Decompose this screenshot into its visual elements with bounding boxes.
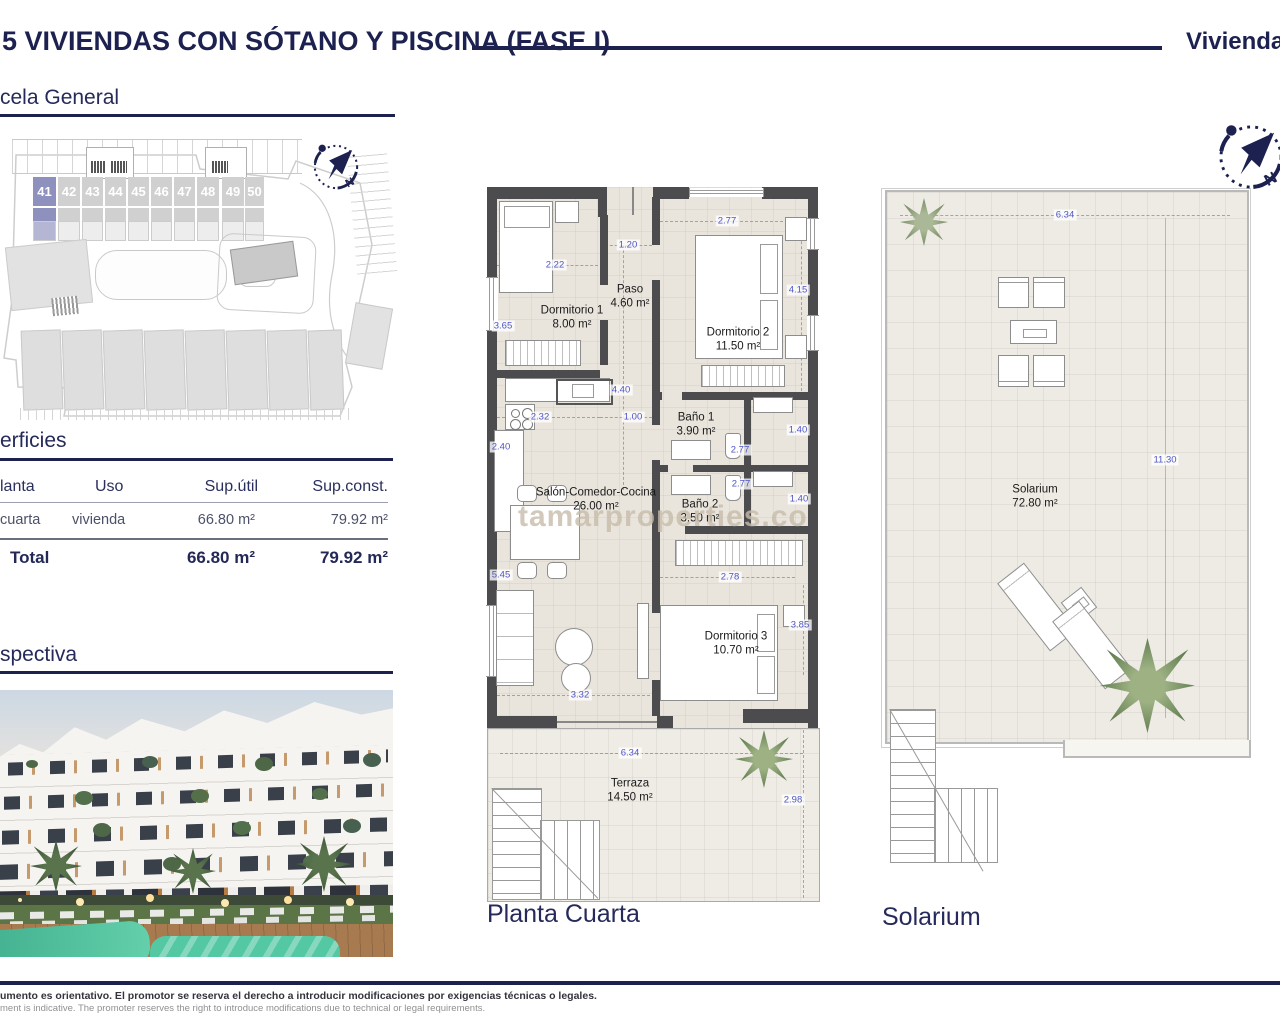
room-area: 11.50 m² <box>716 341 761 353</box>
room-name: Dormitorio 2 <box>707 327 770 339</box>
utility-unit <box>753 397 793 413</box>
room-label-solarium: Solarium 72.80 m² <box>1012 483 1057 512</box>
lower-block <box>226 329 269 410</box>
wall <box>743 709 818 723</box>
superficies-heading: erficies <box>0 429 67 453</box>
tv-bench <box>637 603 649 679</box>
bath1-sink <box>671 440 711 460</box>
dim-label: 4.15 <box>787 285 810 296</box>
round-side-table <box>561 663 591 693</box>
dim-label: 2.77 <box>729 445 752 456</box>
room-area: 8.00 m² <box>552 319 591 331</box>
dim-line <box>803 730 804 898</box>
dim-label: 3.65 <box>492 321 515 332</box>
building-render-photo <box>0 690 393 957</box>
stove-burners-icon <box>511 409 520 418</box>
parcela-general-heading: cela General <box>0 86 119 110</box>
title-rule <box>472 46 1162 50</box>
perspectiva-rule <box>0 671 393 674</box>
compass-icon: N <box>1214 120 1280 194</box>
superficies-rule <box>0 458 393 461</box>
dorm2-dresser <box>701 365 785 387</box>
terrace-slider-door <box>557 721 657 723</box>
plot-44: 44 <box>105 177 126 221</box>
total-sup-util: 66.80 m² <box>160 548 255 568</box>
lower-block <box>62 329 105 410</box>
col-header-sup-const: Sup.const. <box>285 478 388 496</box>
room-name: Terraza <box>611 778 649 790</box>
row-uso: vivienda <box>72 512 125 528</box>
solarium-floor <box>885 190 1249 744</box>
dim-label: 2.98 <box>782 795 805 806</box>
disclaimer-es: umento es orientativo. El promotor se re… <box>0 990 597 1002</box>
header-right-label: Viviendas <box>1186 28 1280 56</box>
dorm1-wardrobe <box>505 340 581 366</box>
exterior-stairs <box>890 709 936 863</box>
dim-line <box>1165 218 1166 718</box>
dim-label: 2.77 <box>716 216 739 227</box>
garden-lamps <box>18 898 22 902</box>
dim-label: 11.30 <box>1151 455 1178 466</box>
dim-label: 1.00 <box>622 412 645 423</box>
exterior-stairs <box>934 788 998 863</box>
plot-stub <box>33 221 56 241</box>
dorm3-wardrobe <box>675 540 803 566</box>
entrance-gate-left <box>86 147 134 179</box>
room-label-terraza: Terraza 14.50 m² <box>607 777 652 806</box>
room-label-paso: Paso 4.60 m² <box>611 283 650 312</box>
plot-42: 42 <box>58 177 80 221</box>
wall <box>652 465 668 472</box>
wall <box>652 197 660 245</box>
bottom-hatch <box>20 408 350 420</box>
room-label-dorm1: Dormitorio 1 8.00 m² <box>541 304 604 333</box>
dim-label: 5.45 <box>490 570 513 581</box>
plot-47: 47 <box>174 177 195 221</box>
total-label: Total <box>10 548 49 568</box>
dim-label: 2.40 <box>490 442 513 453</box>
building-block-left <box>5 239 93 311</box>
wall <box>600 215 608 285</box>
dim-label: 3.85 <box>789 620 812 631</box>
parcela-rule <box>0 114 395 117</box>
bed-pillow <box>504 206 550 228</box>
lower-block <box>21 329 64 410</box>
plot-stub <box>58 221 80 241</box>
solarium-step <box>1063 740 1251 758</box>
stair-hatch-icon <box>51 296 79 317</box>
table-header-rule <box>0 502 388 503</box>
room-label-dorm2: Dormitorio 2 11.50 m² <box>707 326 770 355</box>
dorm2-nightstand <box>785 335 807 359</box>
dorm1-bed <box>499 201 553 293</box>
brochure-page: 5 VIVIENDAS CON SÓTANO Y PISCINA (FASE I… <box>0 0 1280 1024</box>
wall <box>808 187 818 728</box>
plot-stub <box>128 221 149 241</box>
site-plan: 41 42 43 44 45 46 47 48 49 50 <box>0 125 400 420</box>
carport-row <box>12 139 302 174</box>
col-header-sup-util: Sup.útil <box>160 478 258 496</box>
table-detail <box>1023 329 1047 338</box>
table-total-rule <box>0 538 388 540</box>
plot-46: 46 <box>151 177 172 221</box>
plot-divider <box>33 206 264 208</box>
room-area: 3.90 m² <box>677 426 716 438</box>
dim-label: 4.40 <box>610 385 633 396</box>
wall <box>487 370 600 378</box>
bath2-sink <box>671 475 711 495</box>
balcony-plants <box>26 760 38 768</box>
solarium-seat <box>1033 277 1065 308</box>
col-header-uso: Uso <box>95 478 123 496</box>
room-name: Paso <box>617 284 643 296</box>
solarium-plan: 6.34 11.30 Solarium 72.80 m² <box>878 188 1252 904</box>
room-area: 72.80 m² <box>1012 498 1057 510</box>
stair-hatch-icon <box>212 161 228 173</box>
solarium-caption: Solarium <box>882 903 981 932</box>
dim-label: 2.77 <box>730 479 753 490</box>
wall <box>652 460 660 613</box>
watermark: tamarproperties.co <box>518 500 848 534</box>
lower-block <box>103 329 146 410</box>
dim-label: 1.20 <box>617 240 640 251</box>
total-sup-const: 79.92 m² <box>285 548 388 568</box>
room-area: 10.70 m² <box>713 645 758 657</box>
stair-hatch-icon <box>111 161 127 173</box>
row-sup-util: 66.80 m² <box>160 512 255 528</box>
dim-label: 3.32 <box>569 690 592 701</box>
plot-49: 49 <box>222 177 244 221</box>
plot-50: 50 <box>245 177 264 221</box>
dim-label: 6.34 <box>1054 210 1077 221</box>
dim-label: 1.40 <box>787 425 810 436</box>
plot-41-highlighted: 41 <box>33 177 56 221</box>
footer-rule <box>0 981 1280 985</box>
dim-line <box>801 221 802 391</box>
room-name: Dormitorio 1 <box>541 305 604 317</box>
wall <box>487 187 600 199</box>
solarium-seat <box>998 355 1029 387</box>
room-area: 14.50 m² <box>607 792 652 804</box>
round-side-table <box>555 628 593 666</box>
solarium-table <box>1010 320 1057 344</box>
dining-chair <box>517 562 537 579</box>
wall <box>652 392 662 400</box>
dim-label: 2.78 <box>719 572 742 583</box>
wall <box>682 392 818 400</box>
window <box>807 218 819 250</box>
room-name: Dormitorio 3 <box>705 631 768 643</box>
bed-pillow <box>760 244 778 294</box>
wall <box>652 680 660 716</box>
pool-center <box>150 936 340 957</box>
page-title: 5 VIVIENDAS CON SÓTANO Y PISCINA (FASE I… <box>2 26 610 57</box>
plot-stub <box>174 221 195 241</box>
window <box>807 315 819 351</box>
entrance-gate-right <box>205 147 247 179</box>
superficies-table: lanta Uso Sup.útil Sup.const. cuarta viv… <box>0 470 393 580</box>
floor-plan: 3.65 2.22 1.20 4.40 2.77 4.15 2.32 1.00 … <box>485 185 820 905</box>
wall <box>487 716 557 728</box>
bed-pillow <box>757 656 775 694</box>
plot-48: 48 <box>197 177 219 221</box>
col-header-planta: lanta <box>0 478 35 496</box>
utility-unit <box>753 471 793 487</box>
stair-hatch-icon <box>91 161 105 173</box>
dim-label: 6.34 <box>619 748 642 759</box>
wall <box>657 716 673 728</box>
plot-stub <box>197 221 219 241</box>
exterior-stairs <box>540 820 600 900</box>
perspectiva-heading: spectiva <box>0 643 77 667</box>
row-sup-const: 79.92 m² <box>285 512 388 528</box>
room-name: Baño 1 <box>678 412 714 424</box>
compass-icon: N <box>310 141 362 193</box>
lower-block <box>308 329 345 410</box>
disclaimer-en: ment is indicative. The promoter reserve… <box>0 1003 485 1014</box>
lower-block <box>185 329 228 410</box>
row-planta: cuarta <box>0 512 40 528</box>
dim-label: 2.22 <box>544 260 567 271</box>
kitchen-sink <box>572 384 594 398</box>
room-name: Salón-Comedor-Cocina <box>536 487 656 499</box>
entrance-door-leaf <box>632 187 634 215</box>
room-label-bano1: Baño 1 3.90 m² <box>677 411 716 440</box>
plot-43: 43 <box>82 177 103 221</box>
solarium-seat <box>998 277 1029 308</box>
wall <box>652 280 660 425</box>
sofa <box>496 590 534 686</box>
dorm2-nightstand <box>785 217 807 241</box>
room-name: Solarium <box>1012 484 1057 496</box>
pool-outline-large <box>95 250 227 300</box>
dorm1-side-table <box>555 201 579 223</box>
lower-block <box>144 329 187 410</box>
plot-stub <box>105 221 126 241</box>
exterior-stairs <box>492 788 542 900</box>
window <box>689 188 764 197</box>
wall <box>598 187 607 217</box>
room-label-dorm3: Dormitorio 3 10.70 m² <box>705 630 768 659</box>
lower-block <box>267 329 310 410</box>
kitchen-counter <box>505 378 610 402</box>
dining-chair <box>547 562 567 579</box>
floor-plan-caption: Planta Cuarta <box>487 900 640 929</box>
dim-label: 2.32 <box>529 412 552 423</box>
plot-45: 45 <box>128 177 149 221</box>
room-area: 4.60 m² <box>611 298 650 310</box>
plot-stub <box>151 221 172 241</box>
solarium-seat <box>1033 355 1065 387</box>
